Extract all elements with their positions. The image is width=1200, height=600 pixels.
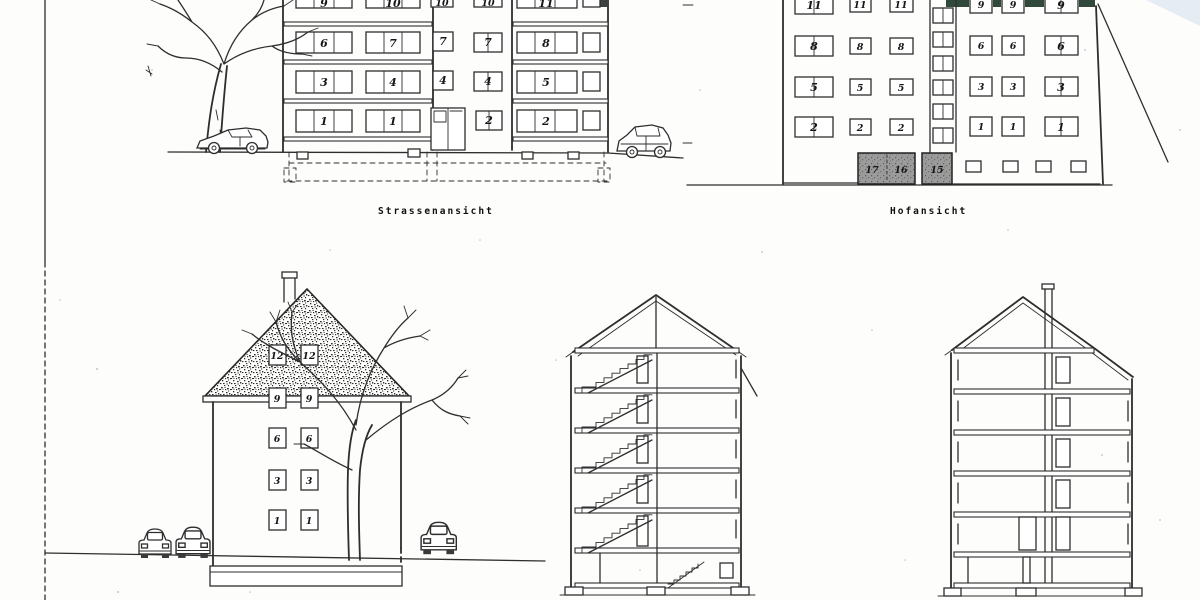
retaining-wall-line — [1098, 4, 1168, 162]
window-number: 1 — [978, 122, 985, 133]
window-number: 1 — [306, 516, 313, 527]
window-number: 11 — [538, 0, 553, 10]
window-number: 7 — [484, 36, 492, 49]
window-number: 9 — [274, 394, 281, 405]
car — [421, 522, 456, 554]
window-number: 1 — [274, 516, 281, 527]
window-number: 10 — [481, 0, 495, 9]
window-number: 10 — [385, 0, 401, 10]
window-number: 8 — [898, 42, 905, 53]
window-number: 5 — [542, 76, 550, 89]
footings — [938, 588, 1142, 596]
chimney — [282, 272, 297, 302]
window-number: 12 — [302, 351, 316, 362]
ground-line — [45, 553, 545, 561]
section-right — [938, 284, 1142, 596]
window-number: 2 — [856, 123, 864, 134]
window-number: 9 — [978, 0, 985, 11]
window-number: 6 — [1010, 41, 1017, 52]
window-number: 11 — [853, 0, 866, 11]
window-number: 4 — [439, 74, 447, 87]
window-number: 8 — [857, 42, 864, 53]
architectural-drawing: 9 10 6 7 3 4 1 1 10 10 7 7 4 4 2 — [0, 0, 1200, 600]
roof — [205, 289, 409, 396]
window-number: 6 — [978, 41, 985, 52]
window-number: 4 — [484, 75, 492, 88]
window-number: 7 — [439, 35, 447, 48]
window-number: 3 — [1057, 81, 1065, 94]
window-group: 11 8 5 2 — [517, 0, 600, 132]
window-number: 8 — [542, 37, 550, 50]
stairwell-glazing — [930, 0, 956, 152]
car — [139, 529, 171, 558]
blue-fold-artifact — [1146, 0, 1200, 26]
window-number: 11 — [806, 0, 821, 12]
ground-line — [168, 152, 683, 158]
window-number: 10 — [435, 0, 449, 9]
window-number: 3 — [306, 476, 313, 487]
window-number: 3 — [274, 476, 281, 487]
left-wing-windows: 11 11 11 8 8 8 5 5 5 2 2 2 — [795, 0, 913, 137]
window-number: 6 — [320, 37, 328, 50]
window-number: 2 — [541, 115, 550, 128]
car — [617, 125, 671, 158]
gable-elevation: 12 12 9 9 6 6 3 3 1 1 — [45, 272, 545, 586]
window-number: 8 — [810, 40, 818, 53]
window-number: 1 — [389, 115, 397, 128]
window-number: 6 — [274, 434, 281, 445]
caption-street-elevation: Strassenansicht — [378, 206, 494, 217]
street-elevation: 9 10 6 7 3 4 1 1 10 10 7 7 4 4 2 — [146, 0, 683, 217]
window-number: 9 — [320, 0, 328, 10]
garage-number: 17 — [865, 165, 879, 176]
window-number: 2 — [484, 114, 493, 127]
window-number: 5 — [898, 83, 905, 94]
entrance-door — [431, 108, 465, 150]
window-number: 2 — [809, 121, 818, 134]
window-number: 3 — [1010, 82, 1017, 93]
scan-artifacts — [59, 0, 1200, 593]
window-number: 9 — [306, 394, 313, 405]
stairwell-windows: 10 10 7 7 4 4 2 — [431, 0, 502, 150]
window-number: 9 — [1010, 0, 1017, 11]
window-number: 1 — [1010, 122, 1017, 133]
doors — [637, 356, 648, 546]
window-number: 1 — [1057, 121, 1065, 134]
caption-courtyard-elevation: Hofansicht — [890, 206, 967, 217]
window-number: 11 — [894, 0, 907, 11]
courtyard-elevation: 11 11 11 8 8 8 5 5 5 2 2 2 — [683, 0, 1168, 217]
scanned-drawing-sheet: 9 10 6 7 3 4 1 1 10 10 7 7 4 4 2 — [0, 0, 1200, 600]
window-number: 3 — [320, 76, 328, 89]
garage-doors: 17 16 15 — [858, 153, 952, 184]
window-number: 4 — [389, 76, 397, 89]
plinth — [210, 566, 402, 586]
window-number: 1 — [320, 115, 328, 128]
window-number: 2 — [897, 123, 905, 134]
basement — [968, 557, 1030, 583]
section-middle — [560, 295, 757, 595]
car — [176, 527, 210, 558]
right-wing-windows: 9 9 9 6 6 6 3 3 3 1 1 1 — [966, 0, 1086, 172]
window-group: 9 10 6 7 3 4 1 1 — [296, 0, 420, 132]
window-number: 6 — [306, 434, 313, 445]
garage-number: 16 — [894, 165, 908, 176]
foundation — [284, 149, 610, 182]
window-number: 6 — [1057, 40, 1065, 53]
window-number: 5 — [810, 81, 818, 94]
garage-number: 15 — [930, 165, 944, 176]
window-number: 9 — [1057, 0, 1065, 12]
window-number: 7 — [389, 37, 397, 50]
window-number: 3 — [978, 82, 985, 93]
window-number: 5 — [857, 83, 864, 94]
